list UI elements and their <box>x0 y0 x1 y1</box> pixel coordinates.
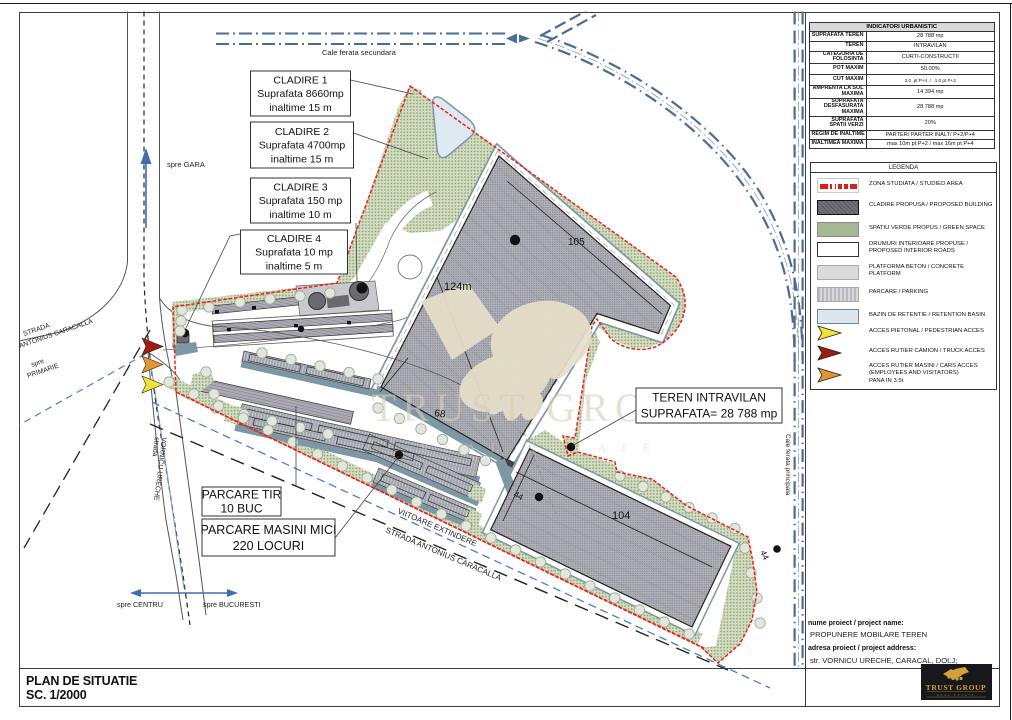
svg-text:TEREN INTRAVILAN: TEREN INTRAVILAN <box>652 391 766 405</box>
svg-text:124m: 124m <box>444 281 472 293</box>
svg-text:Cale ferata principala: Cale ferata principala <box>784 434 791 496</box>
svg-text:44: 44 <box>758 549 771 562</box>
svg-text:CLADIRE 3: CLADIRE 3 <box>273 181 327 193</box>
svg-text:Suprafata 150 mp: Suprafata 150 mp <box>259 195 343 207</box>
svg-text:CLADIRE 2: CLADIRE 2 <box>275 126 329 138</box>
svg-text:Suprafata 8660mp: Suprafata 8660mp <box>257 88 344 100</box>
svg-text:inaltime 5 m: inaltime 5 m <box>266 261 323 273</box>
svg-text:CLADIRE 4: CLADIRE 4 <box>267 233 321 245</box>
svg-text:Suprafata 10 mp: Suprafata 10 mp <box>255 247 333 259</box>
svg-text:10 BUC: 10 BUC <box>220 502 262 516</box>
svg-text:PARCARE MASINI MICI: PARCARE MASINI MICI <box>201 523 337 537</box>
svg-text:SUPRAFATA= 28 788 mp: SUPRAFATA= 28 788 mp <box>641 407 778 421</box>
svg-text:spre CENTRU: spre CENTRU <box>117 600 163 609</box>
svg-text:104: 104 <box>612 510 630 522</box>
svg-text:PARCARE TIR: PARCARE TIR <box>202 488 282 502</box>
svg-text:REAL ESTATE: REAL ESTATE <box>421 441 665 455</box>
svg-text:68: 68 <box>434 408 447 421</box>
svg-text:CLADIRE 1: CLADIRE 1 <box>273 74 327 86</box>
svg-text:Suprafata 4700mp: Suprafata 4700mp <box>259 140 346 152</box>
svg-text:spre BUCURESTI: spre BUCURESTI <box>203 600 261 609</box>
svg-text:105: 105 <box>568 237 585 248</box>
svg-text:inaltime 15 m: inaltime 15 m <box>271 154 334 166</box>
svg-text:inaltime 10 m: inaltime 10 m <box>269 209 332 221</box>
svg-text:Cale ferata secundara: Cale ferata secundara <box>322 48 397 57</box>
svg-text:spre GARA: spre GARA <box>167 160 205 169</box>
svg-text:inaltime 15 m: inaltime 15 m <box>269 102 332 114</box>
svg-text:220 LOCURI: 220 LOCURI <box>233 539 305 553</box>
